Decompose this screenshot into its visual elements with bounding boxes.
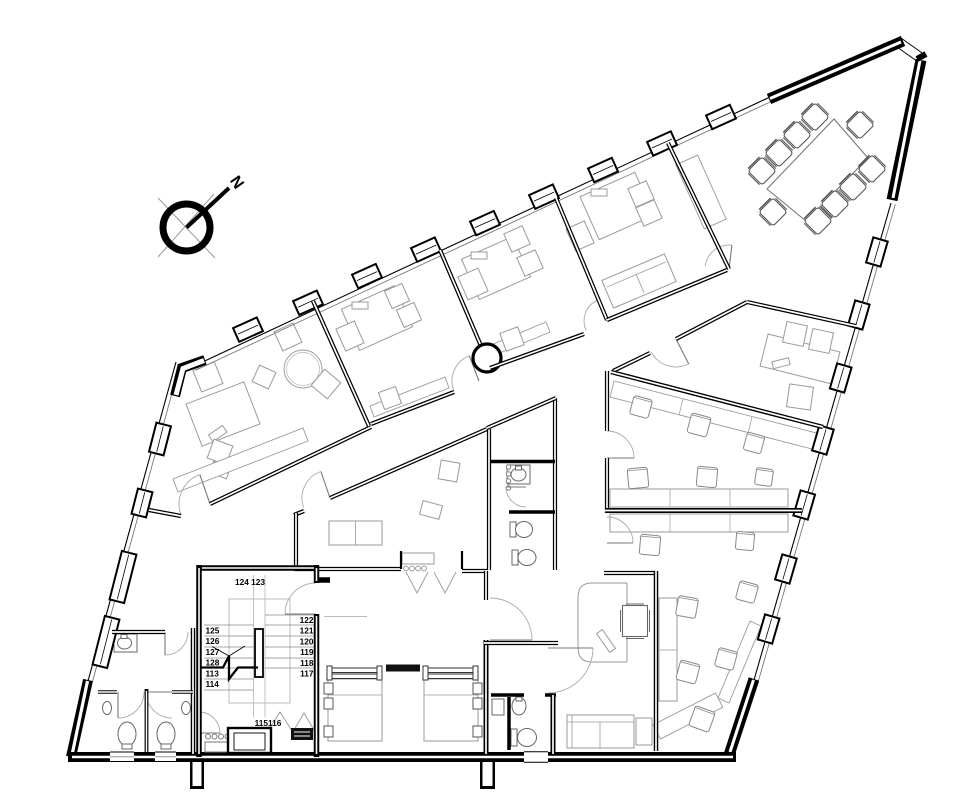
- svg-text:119: 119: [300, 647, 314, 657]
- svg-text:126: 126: [206, 636, 220, 646]
- svg-text:128: 128: [206, 658, 220, 668]
- svg-text:124 123: 124 123: [235, 577, 265, 587]
- svg-text:113: 113: [206, 668, 220, 678]
- svg-text:117: 117: [300, 669, 314, 679]
- svg-text:118: 118: [300, 658, 314, 668]
- svg-text:120: 120: [300, 636, 314, 646]
- svg-text:114: 114: [206, 679, 220, 689]
- svg-text:127: 127: [206, 647, 220, 657]
- svg-text:115116: 115116: [255, 718, 282, 728]
- svg-text:121: 121: [300, 626, 314, 636]
- svg-text:122: 122: [300, 615, 314, 625]
- svg-text:125: 125: [206, 626, 220, 636]
